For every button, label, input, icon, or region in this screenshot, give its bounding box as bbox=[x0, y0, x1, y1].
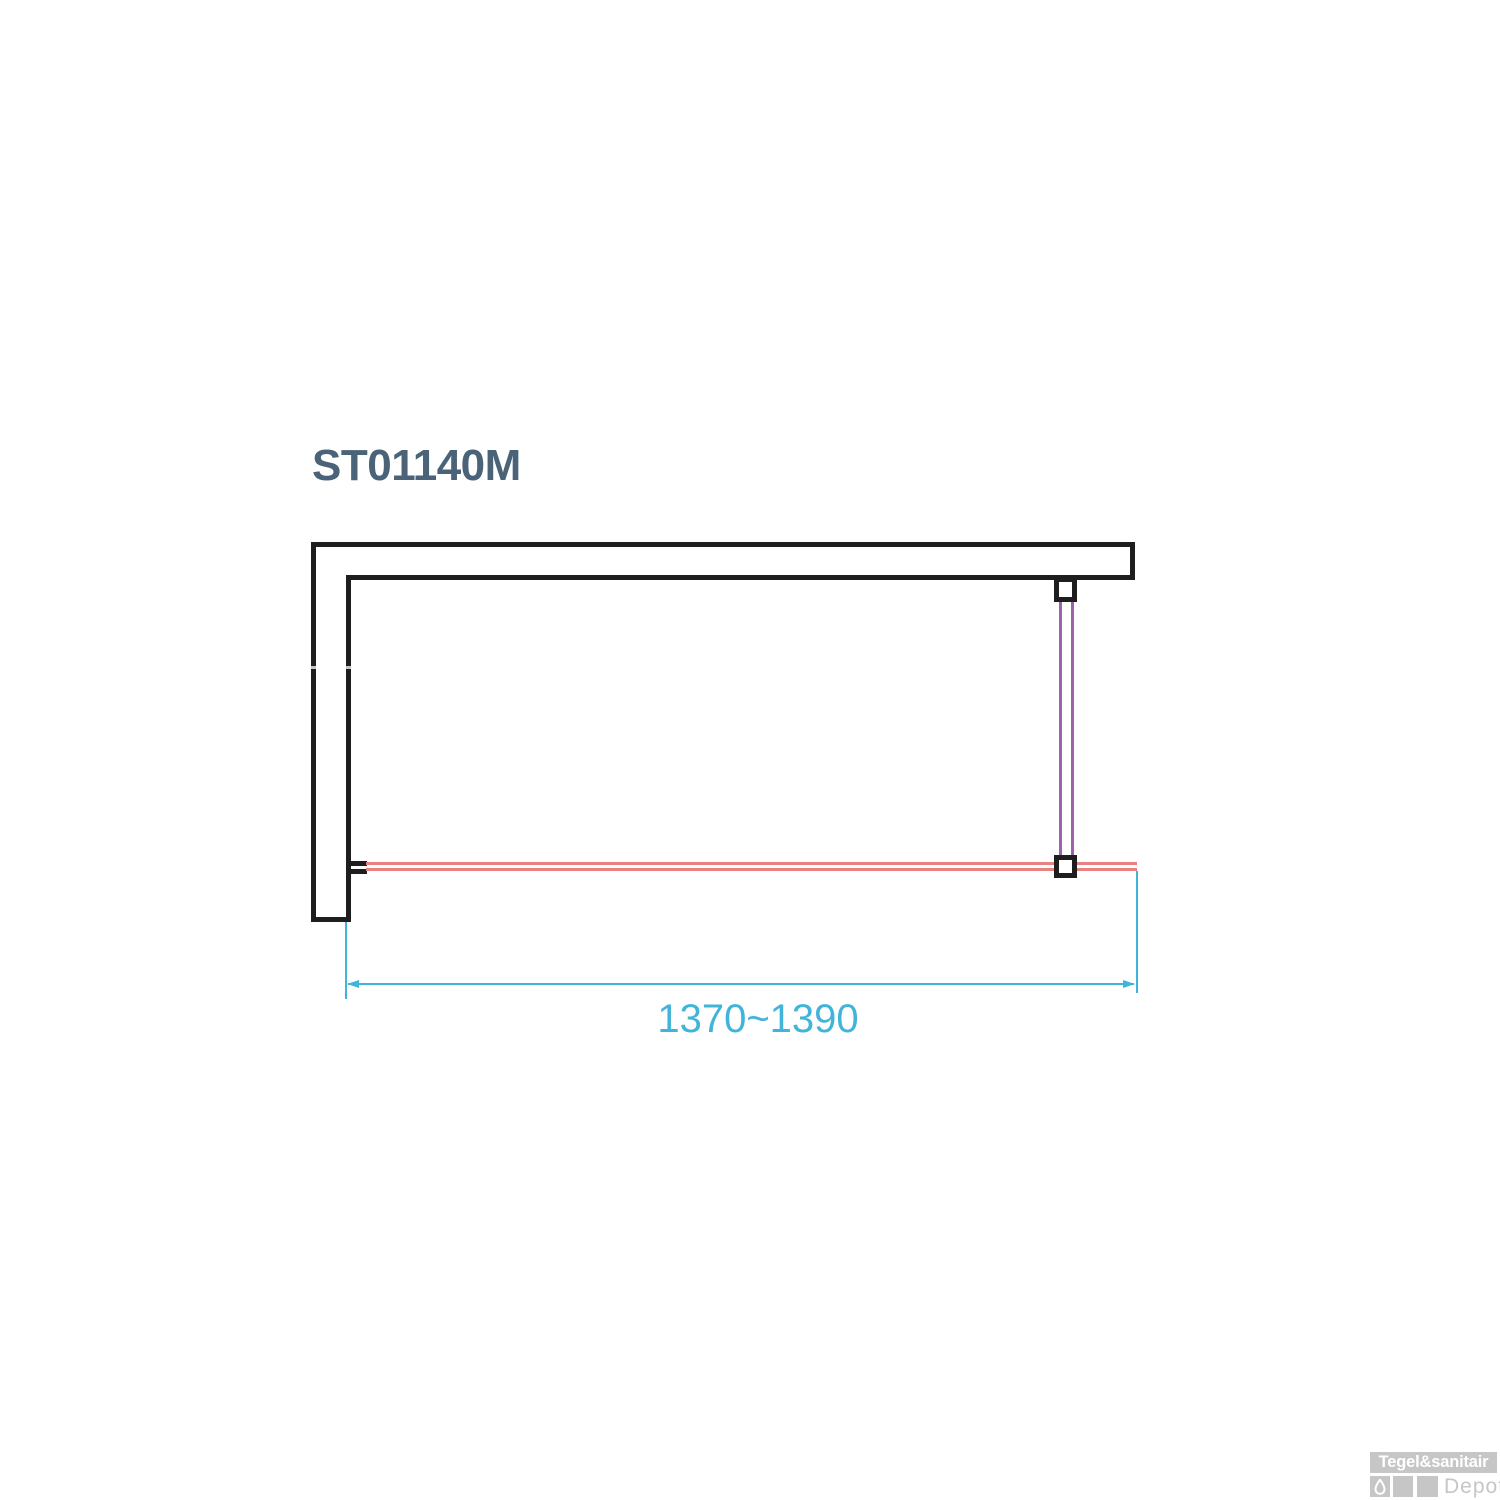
droplet-icon bbox=[1371, 1477, 1389, 1496]
product-code-title: ST01140M bbox=[312, 444, 521, 488]
wall-profile-bracket bbox=[346, 869, 367, 874]
wall-right-end-cap bbox=[1130, 542, 1135, 580]
watermark-depot-label: Depot bbox=[1444, 1476, 1500, 1497]
logo-square bbox=[1417, 1476, 1438, 1497]
wall-segment-break bbox=[346, 666, 351, 669]
wall-profile-bracket bbox=[346, 861, 367, 866]
wall-top-outer-line bbox=[311, 542, 1135, 547]
logo-square-droplet bbox=[1370, 1476, 1390, 1497]
wall-left-outer-line bbox=[311, 542, 316, 922]
stabilizer-glass-bracket bbox=[1054, 855, 1077, 878]
arrow-right-icon bbox=[1123, 980, 1135, 988]
watermark-brand-box: Tegel&sanitair bbox=[1370, 1452, 1497, 1473]
glass-panel-line bbox=[366, 868, 1137, 871]
dimension-label: 1370~1390 bbox=[598, 999, 918, 1039]
glass-panel-line bbox=[366, 862, 1137, 865]
stabilizer-ceiling-bracket bbox=[1054, 577, 1077, 602]
stabilizer-bar-line bbox=[1059, 600, 1062, 857]
diagram-canvas: ST01140M 1370~1390 Tegel&sanitair Depot bbox=[0, 0, 1500, 1500]
dimension-extension-line-right bbox=[1136, 871, 1138, 993]
wall-top-inner-line bbox=[346, 575, 1135, 580]
arrow-left-icon bbox=[347, 980, 359, 988]
dimension-line bbox=[348, 983, 1134, 985]
logo-square bbox=[1393, 1476, 1413, 1497]
stabilizer-bar-line bbox=[1071, 600, 1074, 857]
wall-segment-break bbox=[311, 666, 316, 669]
